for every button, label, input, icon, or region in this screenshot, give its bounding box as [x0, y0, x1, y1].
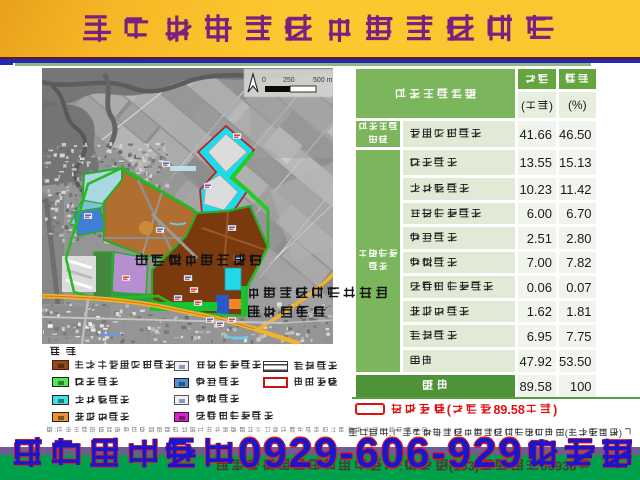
svg-text:250: 250	[283, 77, 295, 84]
svg-text:0: 0	[262, 77, 266, 84]
svg-text:500 m: 500 m	[313, 77, 333, 84]
